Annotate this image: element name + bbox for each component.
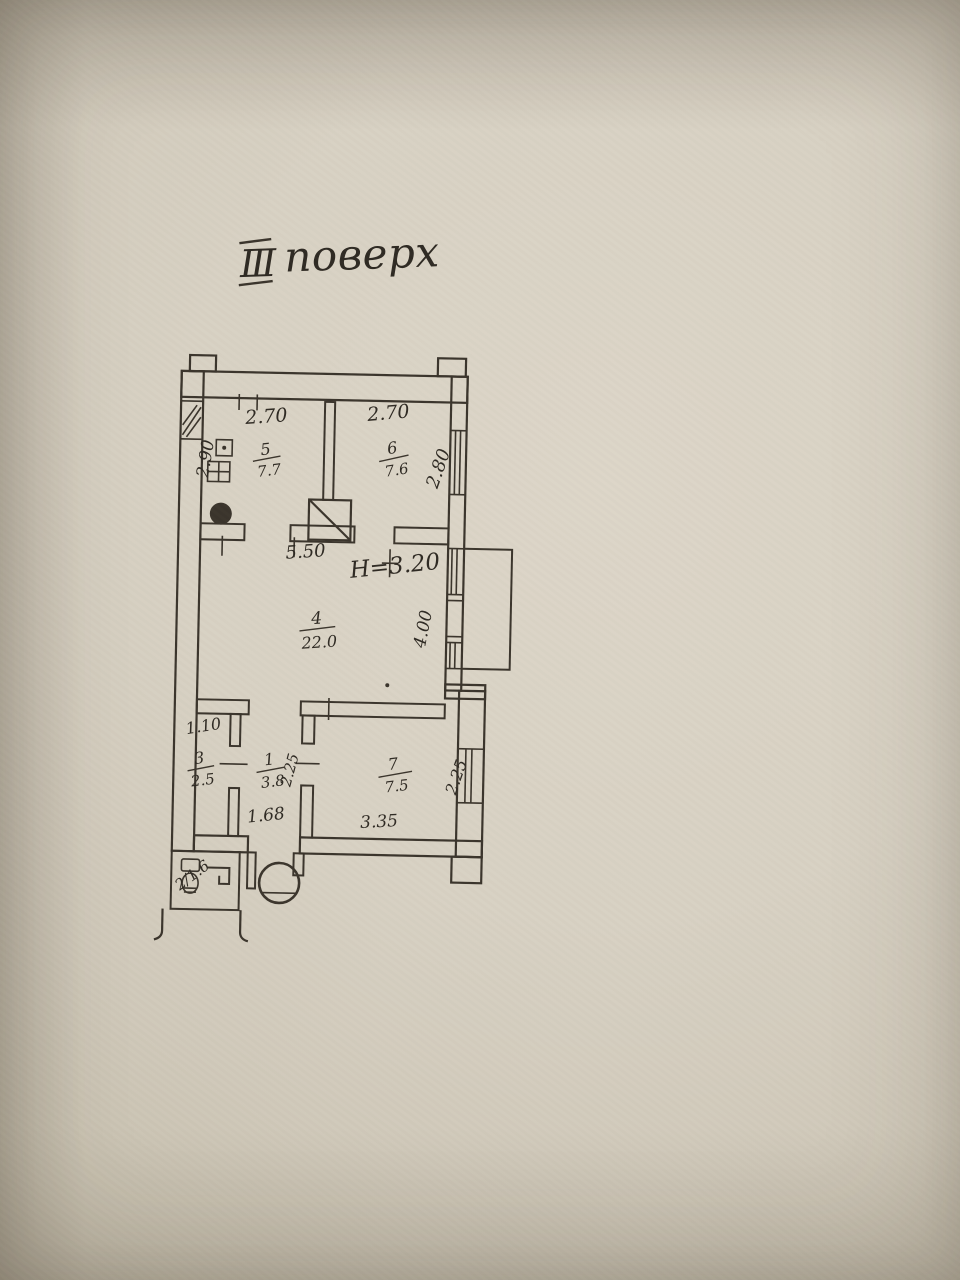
wall-bottom-left-part bbox=[194, 835, 248, 852]
dim-room6-width: 2.70 bbox=[365, 400, 410, 426]
partition-room1-room7-bottom bbox=[300, 785, 313, 837]
svg-text:7.7: 7.7 bbox=[256, 460, 282, 481]
svg-text:7.5: 7.5 bbox=[384, 776, 410, 797]
dim-room7-width: 3.35 bbox=[360, 811, 399, 833]
room-3-label: 3 2.5 bbox=[185, 747, 217, 791]
room-6-label: 6 7.6 bbox=[376, 436, 412, 481]
partition-room3-room1-top bbox=[230, 714, 241, 746]
floor-plan: Ⅲ поверх bbox=[0, 0, 960, 1280]
partition-room3-room1-bottom bbox=[228, 788, 239, 836]
wall-top bbox=[181, 371, 467, 403]
ceiling-height-note: H=3.20 bbox=[348, 549, 442, 584]
wall-bottom-right-pilaster bbox=[451, 857, 482, 884]
window-icon bbox=[449, 430, 466, 494]
room-4-label: 4 22.0 bbox=[298, 608, 338, 653]
photographed-floor-plan-sheet: Ⅲ поверх bbox=[0, 0, 960, 1280]
ink-dot bbox=[385, 683, 389, 687]
dim-room5-width: 2.70 bbox=[244, 404, 289, 429]
svg-text:4: 4 bbox=[310, 608, 323, 629]
plan-title: Ⅲ поверх bbox=[237, 227, 440, 286]
svg-text:2.5: 2.5 bbox=[189, 770, 216, 791]
partition-room1-room7-top bbox=[302, 715, 315, 743]
water-heater-icon bbox=[210, 502, 232, 524]
svg-text:5: 5 bbox=[259, 439, 271, 459]
window-icon bbox=[180, 401, 203, 439]
stair-wall-stub-right bbox=[240, 910, 249, 941]
dim-room5-depth: 2.90 bbox=[193, 438, 219, 480]
dim-room4-depth: 4.00 bbox=[410, 608, 437, 650]
svg-text:7: 7 bbox=[387, 754, 400, 774]
svg-text:6: 6 bbox=[386, 438, 399, 458]
wall-mid-lower-a bbox=[197, 699, 249, 714]
room-7-label: 7 7.5 bbox=[376, 752, 415, 797]
vestibule-wall-left bbox=[247, 852, 256, 888]
garbage-chute-icon bbox=[259, 863, 300, 904]
wall-mid-lower-b bbox=[301, 701, 445, 718]
svg-text:1: 1 bbox=[263, 749, 275, 769]
wall-top-pilaster-right bbox=[438, 358, 466, 377]
svg-text:3: 3 bbox=[193, 748, 205, 768]
plan-drawing: 2.70 2.70 2.90 2.80 5.50 H=3.20 4.00 1.1… bbox=[154, 353, 516, 947]
balcony-outline bbox=[462, 549, 513, 670]
stair-wall-stub-left bbox=[154, 908, 163, 939]
wall-top-pilaster-left bbox=[190, 355, 216, 372]
partition-room5-room6 bbox=[323, 402, 335, 500]
dim-room1-width: 1.68 bbox=[246, 804, 286, 828]
svg-text:7.6: 7.6 bbox=[384, 459, 411, 481]
room-5-label: 5 7.7 bbox=[251, 438, 284, 481]
dim-room3-width: 1.10 bbox=[184, 714, 222, 738]
svg-text:22.0: 22.0 bbox=[300, 631, 338, 652]
vent-shaft-icon bbox=[308, 500, 351, 541]
dim-room4-width: 5.50 bbox=[285, 540, 326, 564]
wall-mid-upper-c bbox=[394, 527, 448, 544]
svg-text:3.8: 3.8 bbox=[260, 771, 286, 792]
title-word: поверх bbox=[283, 227, 440, 281]
dim-room7-depth: 2.25 bbox=[441, 757, 471, 798]
title-numeral: Ⅲ bbox=[238, 241, 279, 286]
